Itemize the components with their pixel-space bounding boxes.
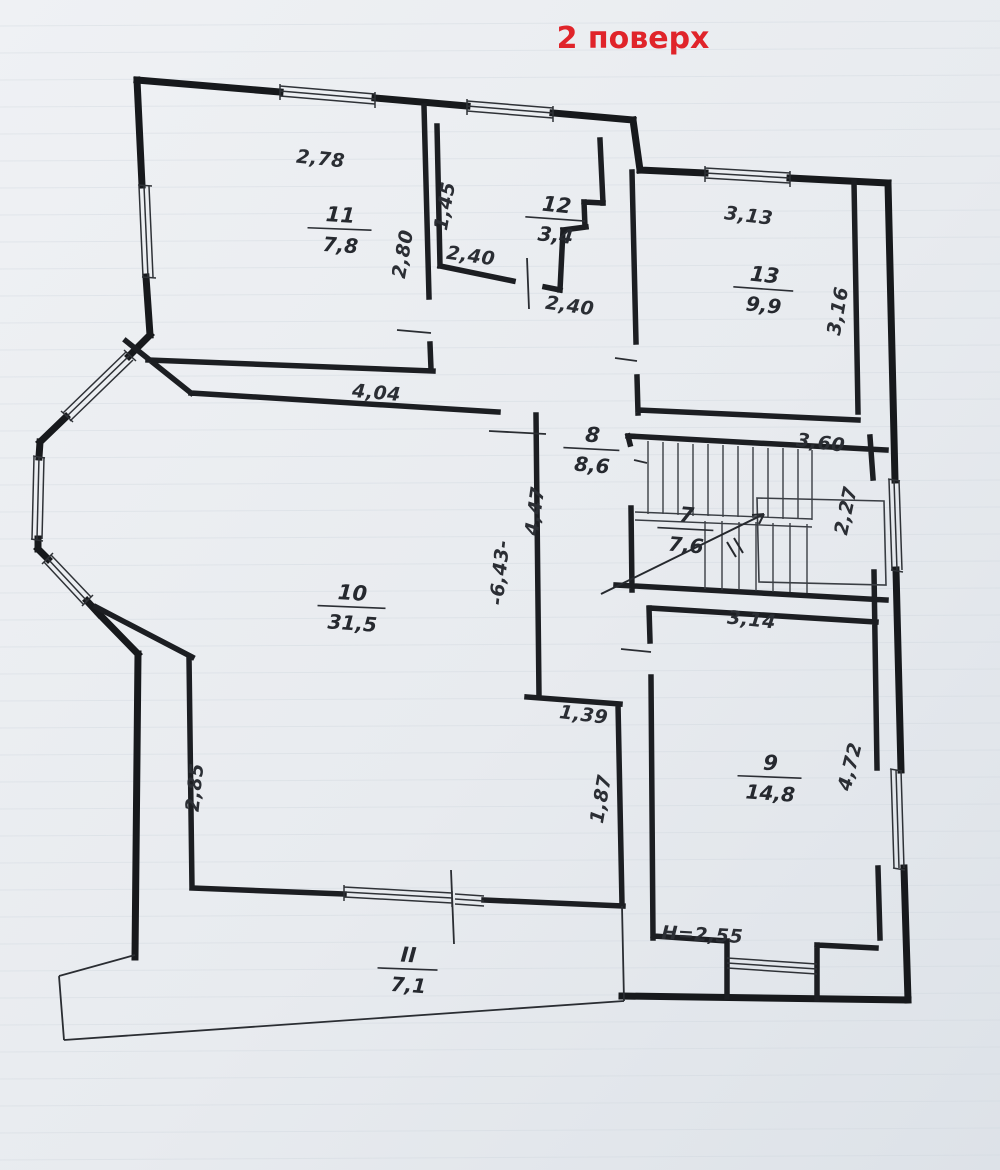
room-number: 12 <box>541 192 573 219</box>
room-area: 8,6 <box>573 452 610 479</box>
floorplan-canvas: 2 поверх 11 7,8 12 3,4 13 9,9 8 8,6 7 7,… <box>0 0 1000 1170</box>
room-area: 9,9 <box>745 291 783 319</box>
room-number: 9 <box>762 751 778 776</box>
room-number: 11 <box>325 202 356 228</box>
room-number: 13 <box>749 262 781 289</box>
room-area: 7,1 <box>390 972 427 998</box>
scanned-floorplan-page: 2 поверх 11 7,8 12 3,4 13 9,9 8 8,6 7 7,… <box>0 0 1000 1170</box>
room-number: 7 <box>678 502 695 527</box>
dim-room10-top: 4,04 <box>350 380 402 406</box>
room-area: 7,6 <box>667 532 704 559</box>
room-number: 10 <box>337 580 368 606</box>
room-area: 3,4 <box>537 221 575 249</box>
room-number: II <box>400 943 417 968</box>
room-number: 8 <box>584 422 601 447</box>
room-area: 14,8 <box>745 779 796 806</box>
room-area: 31,5 <box>327 609 378 636</box>
page-title: 2 поверх <box>557 21 710 56</box>
room-area: 7,8 <box>322 232 359 258</box>
dim-ceiling-height: H=2,55 <box>661 922 744 948</box>
